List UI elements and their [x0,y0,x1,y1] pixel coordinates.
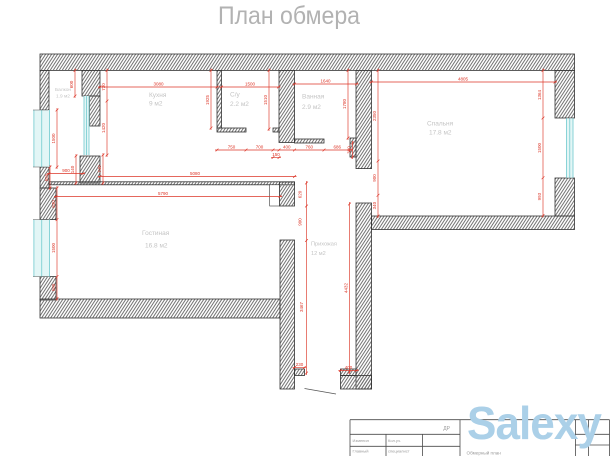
svg-text:Спальня: Спальня [427,121,454,128]
svg-text:1500: 1500 [51,133,56,144]
svg-text:400: 400 [283,145,291,150]
svg-text:Изменил: Изменил [353,438,370,443]
svg-text:2.2 м2: 2.2 м2 [230,101,249,108]
svg-text:Ванная: Ванная [302,94,325,101]
svg-text:830: 830 [51,200,56,208]
svg-text:5080: 5080 [190,171,201,176]
svg-text:1.9 м2: 1.9 м2 [56,94,70,100]
svg-text:2.9 м2: 2.9 м2 [302,104,321,111]
svg-text:Гостиная: Гостиная [142,230,170,237]
svg-text:730: 730 [101,83,106,91]
svg-text:Балкон: Балкон [55,87,71,93]
svg-text:400: 400 [345,365,353,370]
svg-text:2350: 2350 [372,110,377,121]
svg-text:340: 340 [372,201,377,209]
svg-text:Главный: Главный [353,449,369,454]
svg-text:140: 140 [70,165,75,173]
svg-text:3467: 3467 [299,301,304,312]
svg-text:1780: 1780 [342,98,347,109]
svg-text:230: 230 [296,362,304,367]
svg-text:686: 686 [333,145,341,150]
svg-text:3080: 3080 [153,82,164,87]
svg-text:760: 760 [305,145,313,150]
svg-text:900: 900 [372,174,377,182]
svg-text:1500: 1500 [537,142,542,153]
svg-text:1364: 1364 [537,89,542,100]
svg-text:4805: 4805 [458,77,469,82]
svg-text:9 м2: 9 м2 [149,101,163,108]
svg-text:1500: 1500 [51,242,56,253]
svg-text:900: 900 [62,168,70,173]
svg-text:С/у: С/у [230,92,241,99]
svg-text:12 м2: 12 м2 [311,251,326,257]
svg-text:16.8 м2: 16.8 м2 [145,243,168,250]
svg-text:900: 900 [298,218,303,226]
svg-text:17.8 м2: 17.8 м2 [429,130,452,137]
svg-text:1420: 1420 [101,122,106,133]
svg-text:Кол.уч.: Кол.уч. [388,438,401,443]
svg-text:620: 620 [298,190,303,198]
svg-text:740: 740 [97,165,102,173]
svg-text:Кухня: Кухня [149,92,167,99]
svg-text:580: 580 [51,283,56,291]
svg-text:1500: 1500 [245,82,256,87]
svg-text:993: 993 [537,192,542,200]
svg-text:ДР: ДР [443,426,450,432]
svg-text:Salexy: Salexy [467,397,602,449]
svg-text:380: 380 [346,146,351,154]
svg-text:750: 750 [228,145,236,150]
svg-text:План обмера: План обмера [218,2,360,30]
svg-text:150: 150 [272,152,280,157]
svg-text:Обмерный план: Обмерный план [467,450,502,456]
svg-text:1640: 1640 [320,79,331,84]
svg-text:специалист: специалист [388,449,410,454]
svg-text:Прихожая: Прихожая [311,242,337,248]
svg-text:1925: 1925 [205,94,210,105]
svg-text:4432: 4432 [343,282,348,293]
svg-text:1510: 1510 [263,94,268,105]
svg-text:550: 550 [44,173,49,181]
svg-text:700: 700 [256,145,264,150]
svg-text:5790: 5790 [158,191,169,196]
